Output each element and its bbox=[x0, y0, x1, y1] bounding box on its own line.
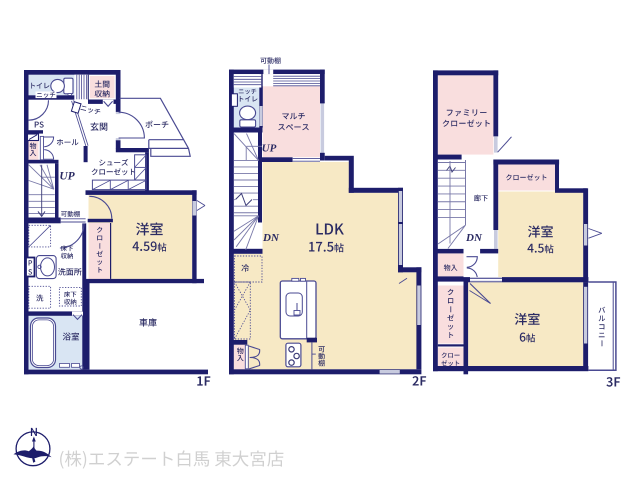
svg-text:DN: DN bbox=[262, 232, 280, 244]
svg-text:DN: DN bbox=[465, 232, 483, 244]
svg-text:UP: UP bbox=[262, 142, 277, 154]
svg-text:UP: UP bbox=[59, 171, 75, 183]
